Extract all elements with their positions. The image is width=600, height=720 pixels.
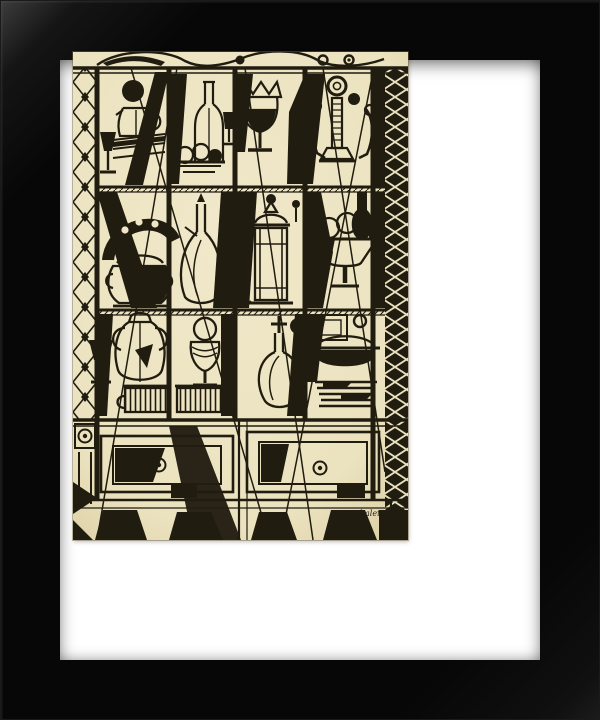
- artwork: R.Zabaleta: [73, 52, 408, 540]
- framed-picture: R.Zabaleta: [0, 0, 600, 720]
- right-border-pattern: [385, 68, 408, 540]
- artist-signature: R.Zabaleta: [340, 509, 385, 518]
- artwork-canvas: R.Zabaleta: [73, 52, 408, 540]
